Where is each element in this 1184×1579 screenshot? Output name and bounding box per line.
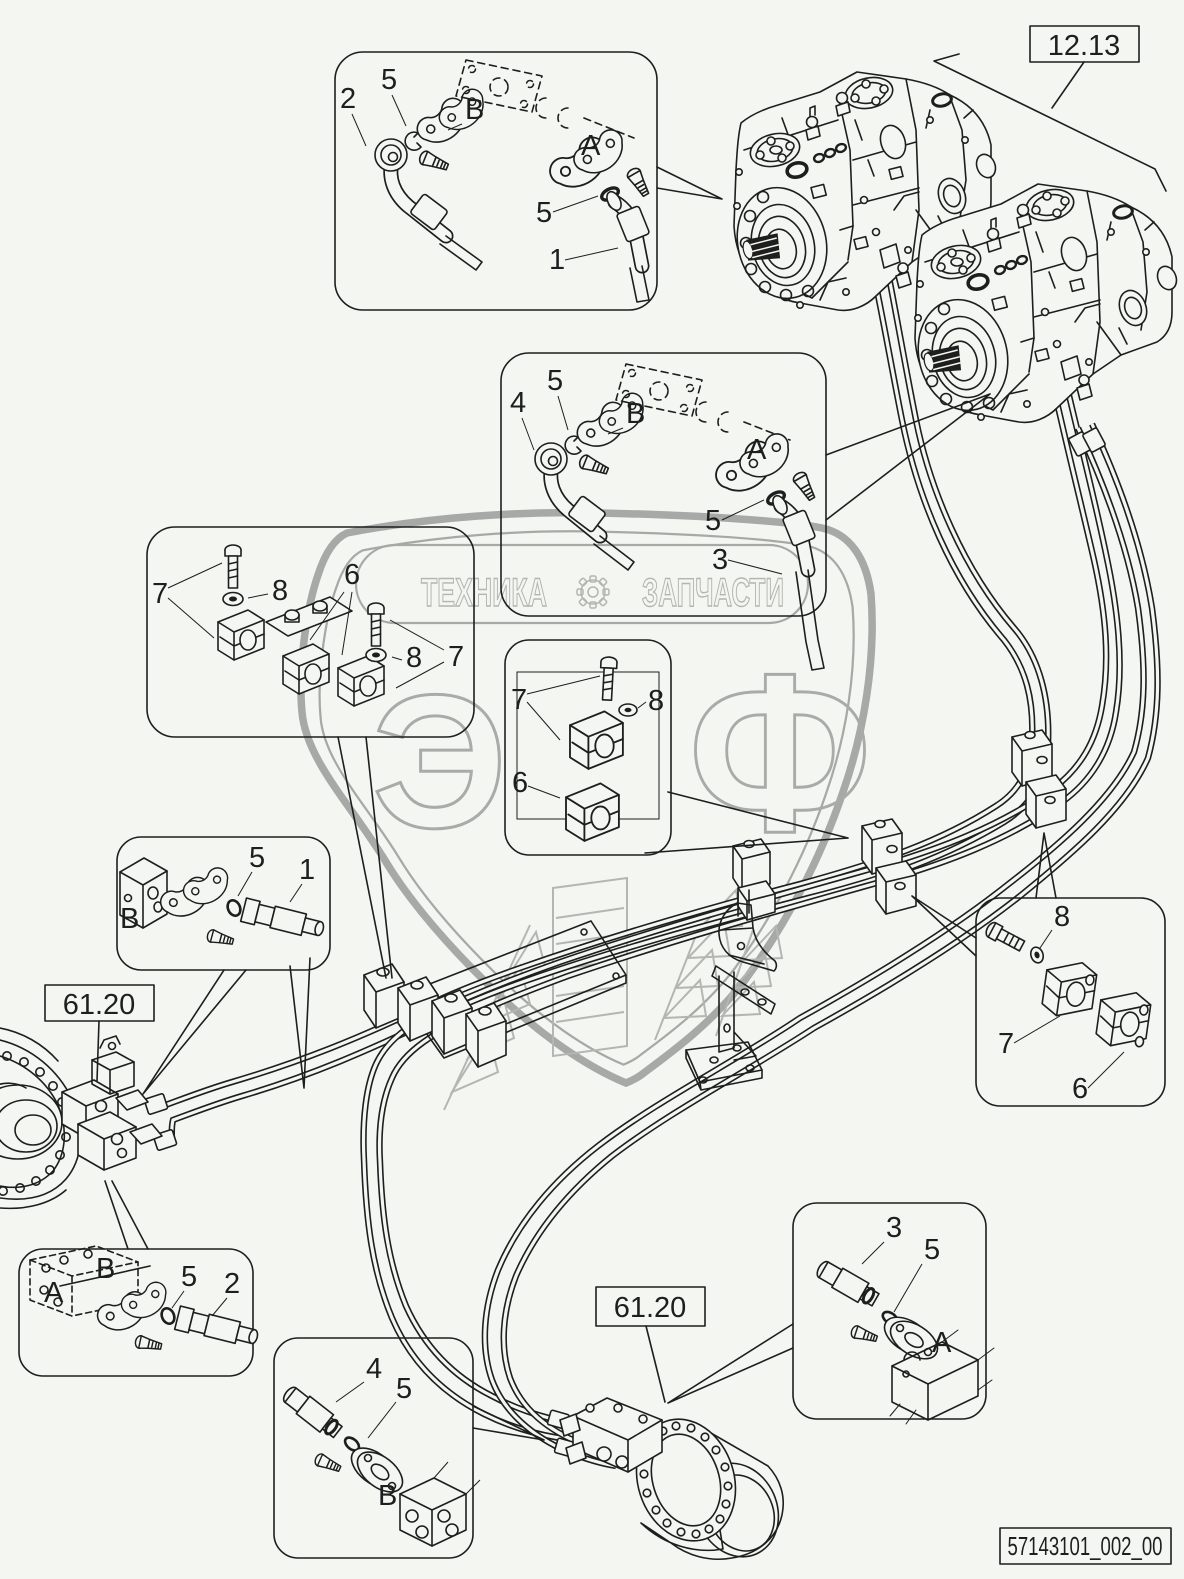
svg-text:57143101_002_00: 57143101_002_00 (1008, 1531, 1163, 1561)
svg-text:7: 7 (998, 1028, 1014, 1060)
svg-text:7: 7 (511, 684, 527, 716)
svg-text:5: 5 (396, 1373, 412, 1405)
svg-text:5: 5 (181, 1261, 197, 1293)
svg-text:5: 5 (547, 365, 563, 397)
svg-text:6: 6 (1072, 1073, 1088, 1105)
svg-text:5: 5 (249, 842, 265, 874)
svg-text:12.13: 12.13 (1048, 30, 1121, 62)
svg-text:6: 6 (344, 559, 360, 591)
svg-text:1: 1 (299, 854, 315, 886)
svg-text:8: 8 (648, 685, 664, 717)
svg-text:3: 3 (886, 1212, 902, 1244)
svg-text:ТЕХНИКА: ТЕХНИКА (421, 571, 547, 615)
svg-text:B: B (626, 398, 645, 430)
svg-text:61.20: 61.20 (63, 989, 136, 1021)
svg-text:2: 2 (340, 83, 356, 115)
svg-text:ЗАПЧАСТИ: ЗАПЧАСТИ (642, 571, 784, 615)
svg-text:A: A (932, 1327, 952, 1359)
svg-text:4: 4 (510, 387, 526, 419)
svg-text:B: B (378, 1480, 397, 1512)
svg-text:8: 8 (272, 575, 288, 607)
svg-text:8: 8 (1054, 901, 1070, 933)
svg-text:7: 7 (152, 578, 168, 610)
svg-text:A: A (44, 1277, 64, 1309)
svg-text:4: 4 (366, 1353, 382, 1385)
svg-text:B: B (465, 94, 484, 126)
svg-text:Ф: Ф (688, 626, 872, 879)
svg-text:7: 7 (448, 641, 464, 673)
svg-text:5: 5 (705, 505, 721, 537)
svg-text:A: A (747, 434, 767, 466)
svg-text:B: B (96, 1253, 115, 1285)
svg-text:5: 5 (536, 197, 552, 229)
svg-text:5: 5 (381, 64, 397, 96)
svg-text:6: 6 (512, 767, 528, 799)
svg-text:5: 5 (924, 1234, 940, 1266)
svg-text:61.20: 61.20 (614, 1292, 687, 1324)
svg-text:B: B (120, 903, 139, 935)
svg-text:1: 1 (549, 244, 565, 276)
svg-text:A: A (581, 130, 601, 162)
svg-text:8: 8 (406, 642, 422, 674)
svg-text:Э: Э (372, 656, 507, 868)
svg-text:2: 2 (224, 1268, 240, 1300)
svg-text:3: 3 (712, 544, 728, 576)
